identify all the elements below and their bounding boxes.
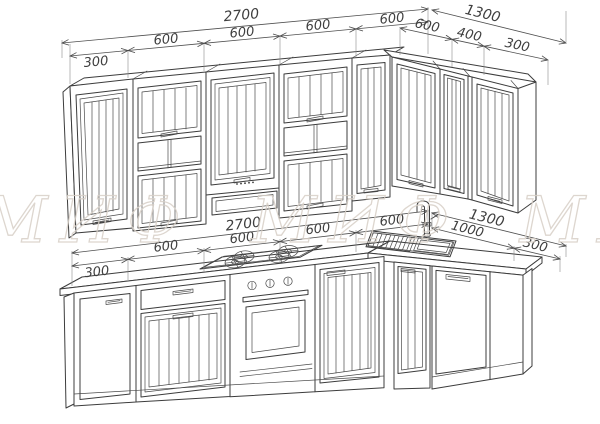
base-right-end-panel-300 — [490, 269, 532, 380]
base-cabinet-angled-left-300 — [64, 286, 136, 409]
dim-upper-front-seg-1: 300 — [83, 54, 109, 71]
drawing-canvas: 2700 300 600 600 600 600 1300 600 400 30… — [0, 0, 600, 424]
base-cabinet-run — [60, 241, 542, 408]
base-corner-sink-cabinet-angled-door — [432, 266, 490, 389]
upper-cabinet-right-600 — [392, 57, 440, 194]
dim-base-front-seg-1: 300 — [84, 263, 110, 281]
dim-upper-front-seg-3: 600 — [229, 24, 255, 41]
dim-upper-front-seg-5: 600 — [379, 10, 405, 27]
upper-cabinet-corner-front-door — [352, 55, 390, 201]
brand-watermark: МИФ МИФ МИФ — [0, 184, 600, 258]
base-corner-cabinet-front-door — [394, 262, 430, 389]
dim-upper-front-seg-4: 600 — [305, 17, 331, 34]
dim-upper-right-seg-2: 400 — [455, 25, 482, 45]
dim-upper-right-seg-3: 300 — [503, 36, 530, 56]
dim-upper-front-seg-2: 600 — [153, 31, 179, 48]
upper-cabinet-right-400 — [440, 69, 468, 199]
dim-upper-front-overall: 2700 — [223, 6, 260, 25]
dim-upper-right-seg-1: 600 — [413, 16, 440, 36]
base-oven-600 — [230, 265, 315, 397]
base-cabinet-600-drawer-door — [136, 275, 230, 403]
kitchen-technical-drawing: 2700 300 600 600 600 600 1300 600 400 30… — [0, 0, 600, 424]
base-cabinet-600-door — [315, 257, 384, 392]
